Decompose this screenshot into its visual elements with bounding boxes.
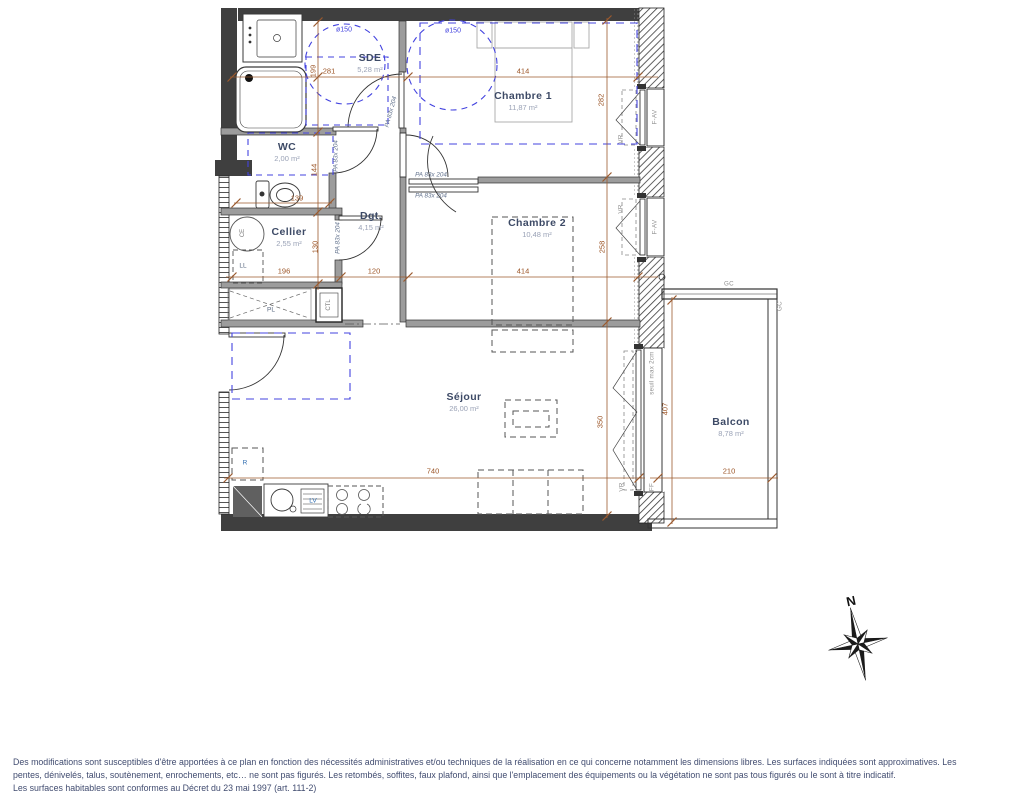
room-label-balcon: Balcon8,78 m² (712, 416, 749, 438)
dim-cellier-width: 196 (278, 267, 291, 276)
door-size-label-chambre1: PA 83x 204 (415, 172, 447, 179)
disclaimer-line-3: Les surfaces habitables sont conformes a… (13, 782, 956, 795)
balcony-rails (648, 274, 777, 528)
door-size-label-wc: PA 83x 204 (333, 140, 340, 172)
dishwasher-label: LV (309, 498, 316, 505)
dim-wc-height: 144 (310, 164, 319, 177)
dim-chambre1-height: 282 (597, 94, 606, 107)
compass-rose (821, 602, 895, 687)
dim-sde-height: 199 (309, 65, 318, 78)
room-label-chambre1: Chambre 111,87 m² (494, 90, 552, 112)
dim-dgt-width: 120 (368, 267, 381, 276)
turning-circle-label-chambre1: ø150 (445, 28, 461, 35)
room-label-cellier: Cellier2,55 m² (272, 226, 307, 248)
dim-chambre2-height: 258 (598, 241, 607, 254)
disclaimer-text: Des modifications sont susceptibles d'êt… (13, 756, 956, 795)
washer-label: LL (239, 263, 246, 270)
room-label-sejour: Séjour26,00 m² (446, 391, 481, 413)
dim-sejour-height: 350 (596, 416, 605, 429)
door-size-label-chambre2: PA 83x 204 (415, 193, 447, 200)
window-label-vr-chambre1: VR (618, 134, 625, 143)
dim-chambre2-width: 414 (517, 267, 530, 276)
door-size-label-cellier: PA 83x 204 (335, 222, 342, 254)
dim-sde-width: 281 (323, 67, 336, 76)
window-label-vr-sejour: VR (619, 482, 626, 491)
window-label-vr-chambre2: VR (618, 204, 625, 213)
room-label-dgt: Dgt.4,15 m² (358, 210, 383, 232)
railing-label-top: GC (724, 281, 734, 288)
window-label-fav-chambre1: F-AV (652, 110, 659, 125)
window-label-ff-sejour: FF (649, 483, 656, 491)
railing-label-right: GC (777, 301, 784, 311)
window-sejour-bay (613, 344, 664, 496)
water-heater-label: CE (240, 229, 246, 237)
dim-balcon-height: 407 (661, 403, 670, 416)
dim-chambre1-width: 414 (517, 67, 530, 76)
floor-plan-page: SDE5,28 m² Chambre 111,87 m² WC2,00 m² D… (0, 0, 1015, 800)
floor-plan-drawing (0, 0, 1015, 800)
room-label-sde: SDE5,28 m² (357, 52, 382, 74)
room-label-chambre2: Chambre 210,48 m² (508, 217, 566, 239)
dim-sejour-width: 740 (427, 467, 440, 476)
fridge-label: R (243, 460, 248, 467)
closet-label: PL (267, 307, 275, 314)
dim-cellier-height: 130 (311, 241, 320, 254)
duct-label: CTL (326, 299, 332, 310)
threshold-label: seuil max 2cm (649, 351, 656, 394)
disclaimer-line-2: pentes, dénivelés, talus, soutènement, e… (13, 769, 956, 782)
disclaimer-line-1: Des modifications sont susceptibles d'êt… (13, 756, 956, 769)
dim-balcon-width: 210 (723, 467, 736, 476)
room-label-wc: WC2,00 m² (274, 141, 299, 163)
window-label-fav-chambre2: F-AV (652, 220, 659, 235)
turning-circle-label-sde: ø150 (336, 27, 352, 34)
dim-wc-width: 139 (291, 194, 304, 203)
